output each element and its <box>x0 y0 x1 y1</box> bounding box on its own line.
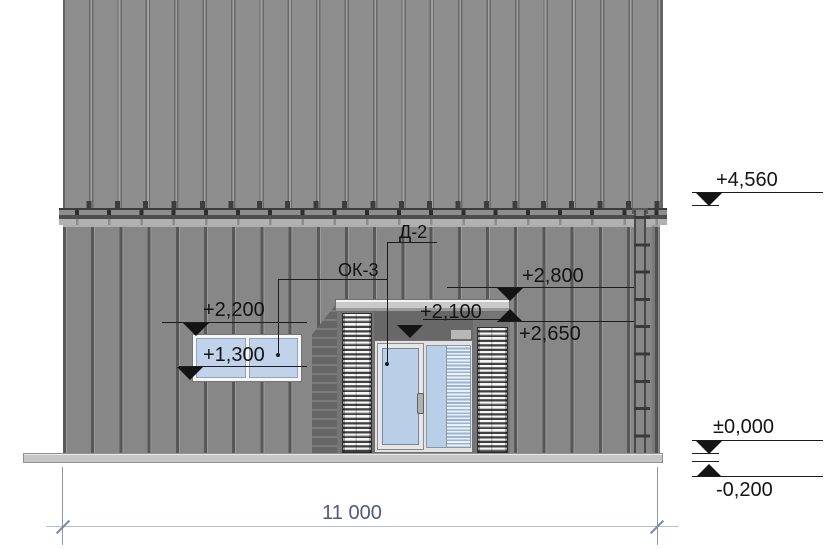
roof-seam-caps <box>63 201 663 208</box>
door-tag-leader <box>387 242 388 364</box>
elevation-door-head-triangle <box>397 325 423 338</box>
elevation-eave-dash <box>692 205 719 206</box>
louver-panel-right <box>477 327 508 453</box>
door-handle <box>417 393 424 414</box>
elevation-drawing: Д-2 ОК-3 +4,560 +2,800 +2,650 +2,100 +2,… <box>0 0 825 550</box>
elevation-window-sill-text: +1,300 <box>203 345 265 365</box>
extension-line-left <box>62 467 63 545</box>
overall-width-dimension: 11 000 <box>307 503 397 523</box>
extension-line-right <box>657 467 658 545</box>
elevation-ground-text: -0,200 <box>716 480 773 500</box>
elevation-canopy-underside-text: +2,650 <box>519 324 581 344</box>
roof-cladding <box>63 0 663 208</box>
elevation-ground-line <box>692 476 823 477</box>
window-leader-dot <box>276 353 280 357</box>
elevation-door-head-line <box>423 319 500 320</box>
sidelight-blinds <box>446 345 471 448</box>
elevation-canopy-top-line <box>447 287 634 288</box>
elevation-ground-dash <box>692 461 719 462</box>
plinth-base <box>23 453 663 463</box>
dimension-line <box>46 526 679 527</box>
entrance-door <box>374 340 473 453</box>
elevation-window-head-text: +2,200 <box>203 300 265 320</box>
elevation-canopy-underside-line <box>497 321 634 322</box>
elevation-canopy-top-triangle <box>497 288 523 301</box>
elevation-eave-text: +4,560 <box>716 170 778 190</box>
wall-corner-shade <box>652 225 660 453</box>
door-leader-dot <box>385 362 389 366</box>
downspout-collars <box>634 210 650 453</box>
door-tag: Д-2 <box>399 223 427 241</box>
transom-trim <box>451 330 471 339</box>
elevation-floor-text: ±0,000 <box>713 417 774 437</box>
elevation-floor-dash <box>692 453 719 454</box>
window-tag: ОК-3 <box>338 261 379 279</box>
elevation-canopy-top-text: +2,800 <box>522 266 584 286</box>
dimension-tick-left <box>56 520 70 534</box>
eave-gutter <box>59 208 667 225</box>
door-tag-underline <box>387 242 437 243</box>
window-tag-leader <box>278 279 279 356</box>
downspout-pipe <box>634 210 646 453</box>
elevation-window-sill-triangle <box>177 367 203 380</box>
elevation-window-head-triangle <box>183 323 209 336</box>
door-sidelight <box>426 345 447 448</box>
louver-panel-left <box>342 313 372 453</box>
window-tag-underline <box>278 279 387 280</box>
